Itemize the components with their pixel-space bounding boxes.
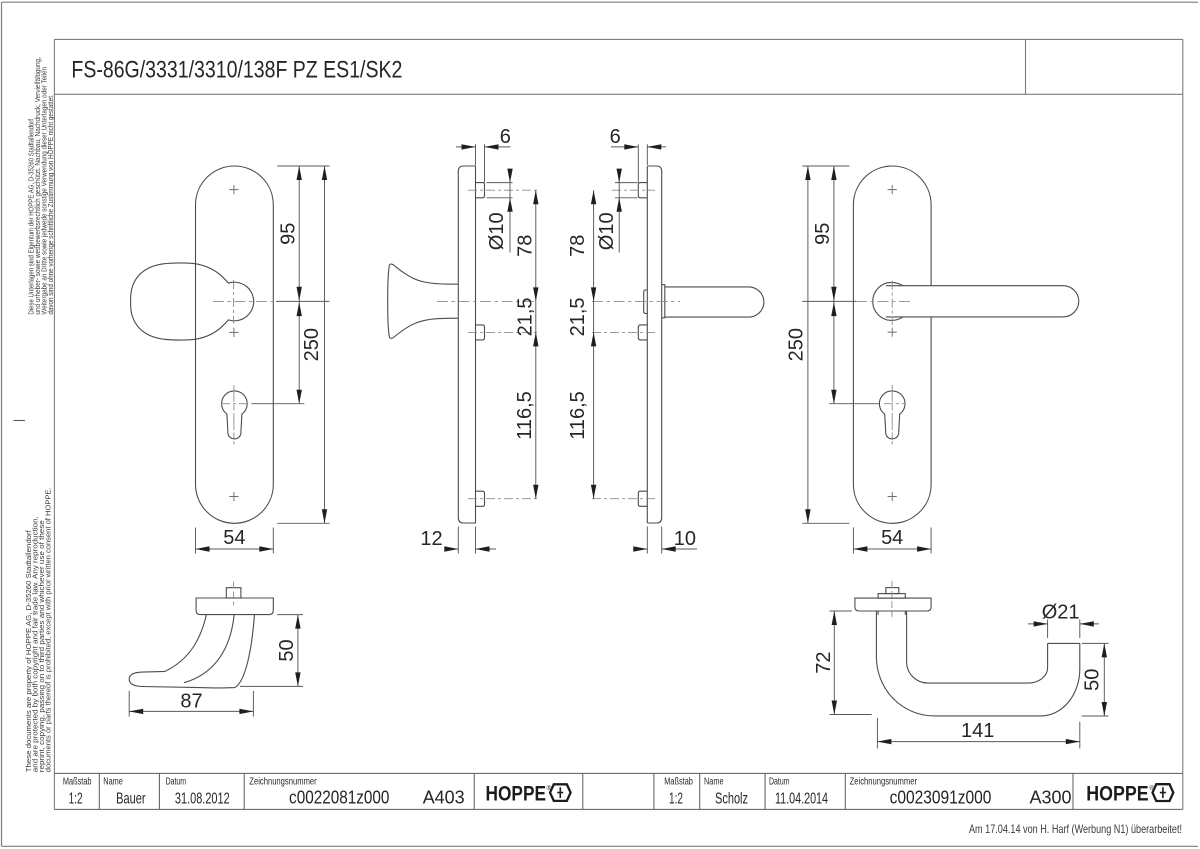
svg-text:Ø10: Ø10 — [486, 212, 508, 250]
svg-text:31.08.2012: 31.08.2012 — [175, 790, 230, 807]
svg-text:Name: Name — [103, 776, 123, 787]
svg-text:50: 50 — [276, 639, 298, 661]
svg-text:Am 17.04.14 von H. Harf (Werbu: Am 17.04.14 von H. Harf (Werbung N1) übe… — [969, 822, 1182, 836]
svg-text:Bauer: Bauer — [116, 790, 146, 807]
svg-text:A403: A403 — [423, 787, 465, 807]
svg-text:12: 12 — [420, 528, 442, 550]
svg-text:78: 78 — [567, 235, 589, 257]
svg-text:250: 250 — [301, 328, 323, 361]
svg-text:FS-86G/3331/3310/138F PZ ES1/S: FS-86G/3331/3310/138F PZ ES1/SK2 — [71, 57, 402, 84]
svg-text:Ø10: Ø10 — [596, 212, 618, 250]
svg-text:1:2: 1:2 — [69, 790, 83, 807]
svg-text:davon sind ohne vorherige schr: davon sind ohne vorherige schriftliche Z… — [48, 94, 55, 314]
svg-text:documents or parts thereof is: documents or parts thereof is prohibited… — [46, 487, 53, 772]
svg-text:Datum: Datum — [166, 776, 187, 787]
svg-text:95: 95 — [812, 223, 834, 245]
svg-text:Ø21: Ø21 — [1042, 601, 1080, 623]
svg-text:116,5: 116,5 — [567, 391, 589, 440]
svg-text:HOPPE: HOPPE — [486, 782, 547, 805]
svg-text:Zeichnungsnummer: Zeichnungsnummer — [850, 776, 918, 787]
svg-text:Name: Name — [704, 776, 724, 787]
svg-text:72: 72 — [813, 651, 835, 673]
svg-text:c0022081z000: c0022081z000 — [289, 787, 389, 807]
svg-text:Scholz: Scholz — [715, 790, 748, 807]
svg-text:11.04.2014: 11.04.2014 — [775, 790, 828, 807]
svg-text:21,5: 21,5 — [514, 297, 536, 336]
svg-text:1:2: 1:2 — [669, 790, 683, 807]
svg-text:Maßstab: Maßstab — [664, 776, 693, 787]
svg-text:6: 6 — [500, 126, 511, 148]
svg-text:HOPPE: HOPPE — [1086, 783, 1148, 806]
svg-text:Zeichnungsnummer: Zeichnungsnummer — [249, 776, 317, 787]
svg-text:87: 87 — [180, 691, 202, 713]
svg-text:6: 6 — [610, 126, 621, 148]
svg-text:141: 141 — [961, 720, 994, 742]
svg-text:A300: A300 — [1030, 787, 1072, 807]
svg-text:21,5: 21,5 — [567, 297, 589, 336]
svg-text:116,5: 116,5 — [514, 391, 536, 440]
svg-text:78: 78 — [514, 235, 536, 257]
svg-text:Datum: Datum — [769, 776, 790, 787]
svg-text:10: 10 — [674, 528, 696, 550]
svg-text:c0023091z000: c0023091z000 — [890, 787, 992, 807]
svg-text:95: 95 — [277, 223, 299, 245]
svg-text:Maßstab: Maßstab — [63, 776, 92, 787]
svg-text:54: 54 — [223, 527, 245, 549]
svg-text:250: 250 — [785, 328, 807, 361]
svg-text:54: 54 — [881, 527, 903, 549]
svg-text:50: 50 — [1082, 669, 1104, 691]
